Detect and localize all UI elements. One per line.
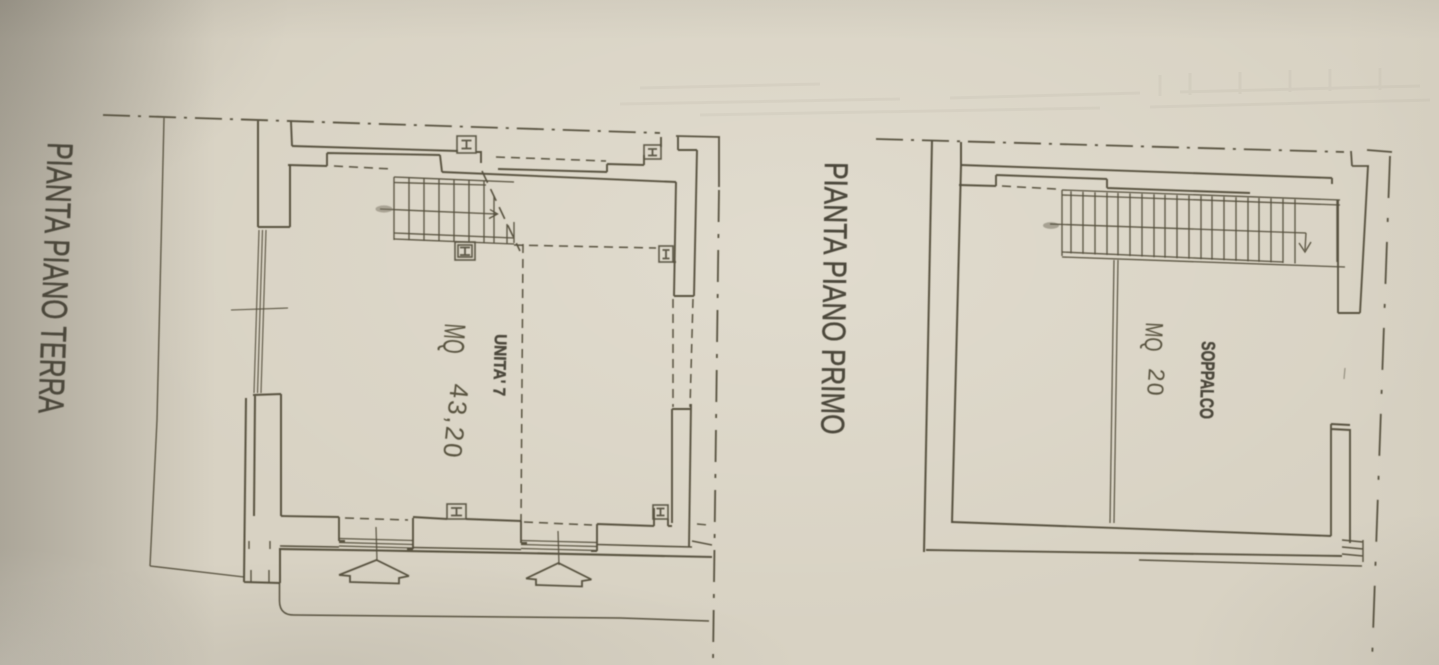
svg-text:SOPPALCO: SOPPALCO — [1195, 341, 1219, 419]
svg-text:PIANTA PIANO TERRA: PIANTA PIANO TERRA — [30, 142, 80, 414]
svg-text:MQ: MQ — [436, 322, 472, 354]
svg-text:43,20: 43,20 — [437, 382, 475, 461]
svg-text:MQ: MQ — [1139, 322, 1169, 352]
svg-text:20: 20 — [1142, 368, 1170, 398]
svg-text:PIANTA PIANO PRIMO: PIANTA PIANO PRIMO — [813, 162, 853, 435]
svg-text:UNITA' 7: UNITA' 7 — [489, 334, 510, 396]
